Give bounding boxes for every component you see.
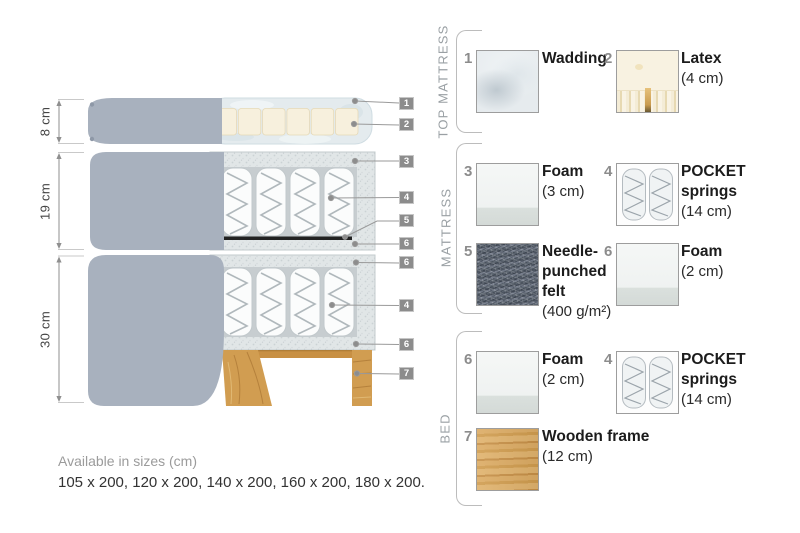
pocket-springs-icon: [617, 352, 678, 413]
available-sizes-title: Available in sizes (cm): [58, 453, 197, 469]
latex-swatch: [616, 50, 679, 113]
item-label-bed-pocket-springs: POCKET springs (14 cm): [681, 350, 800, 410]
bed-cross-section-diagram: 8 cm 19 cm 30 cm 1 2 3 4 5 6 6 4 6 7 Ava…: [0, 0, 430, 533]
callout-tag-5: 5: [399, 214, 414, 227]
item-label-latex: Latex (4 cm): [681, 49, 800, 89]
bed-construction-infographic: 8 cm 19 cm 30 cm 1 2 3 4 5 6 6 4 6 7 Ava…: [0, 0, 800, 533]
foam-swatch-2cm: [616, 243, 679, 306]
item-label-wooden-frame: Wooden frame (12 cm): [542, 427, 702, 467]
callout-tag-4: 4: [399, 191, 414, 204]
pocket-springs-icon: [617, 164, 678, 225]
materials-legend: TOP MATTRESS MATTRESS BED 1 Wadding 2 La…: [430, 0, 800, 533]
callout-tag-4b: 4: [399, 299, 414, 312]
top-mattress-fabric: [88, 98, 222, 144]
available-sizes-list: 105 x 200, 120 x 200, 140 x 200, 160 x 2…: [58, 474, 425, 491]
callout-tag-6c: 6: [399, 338, 414, 351]
dimension-label-top-mattress: 8 cm: [38, 92, 53, 152]
bed-section: [88, 255, 375, 406]
callout-tag-3: 3: [399, 155, 414, 168]
wood-swatch: [476, 428, 539, 491]
dimension-label-mattress: 19 cm: [38, 172, 53, 232]
foam-swatch-3cm: [476, 163, 539, 226]
felt-swatch: [476, 243, 539, 306]
callout-tag-2: 2: [399, 118, 414, 131]
callout-tag-1: 1: [399, 97, 414, 110]
bed-foam-swatch: [476, 351, 539, 414]
section-label-top-mattress: TOP MATTRESS: [436, 22, 451, 142]
wadding-swatch: [476, 50, 539, 113]
bed-fabric: [88, 255, 224, 406]
dimension-label-bed: 30 cm: [38, 300, 53, 360]
section-label-bed: BED: [438, 369, 453, 489]
callout-tag-6: 6: [399, 237, 414, 250]
item-label-foam-2cm: Foam (2 cm): [681, 242, 800, 282]
callout-tag-7: 7: [399, 367, 414, 380]
wooden-frame: [222, 350, 372, 406]
mattress-section: [90, 152, 375, 250]
item-label-pocket-springs: POCKET springs (14 cm): [681, 162, 800, 222]
dimension-rulers: [56, 100, 84, 403]
bed-pocket-springs-swatch: [616, 351, 679, 414]
needle-punched-felt-layer: [218, 237, 352, 241]
pocket-springs-swatch: [616, 163, 679, 226]
top-mattress-section: [88, 98, 372, 144]
section-label-mattress: MATTRESS: [439, 168, 454, 288]
callout-tag-6b: 6: [399, 256, 414, 269]
mattress-fabric: [90, 152, 224, 250]
